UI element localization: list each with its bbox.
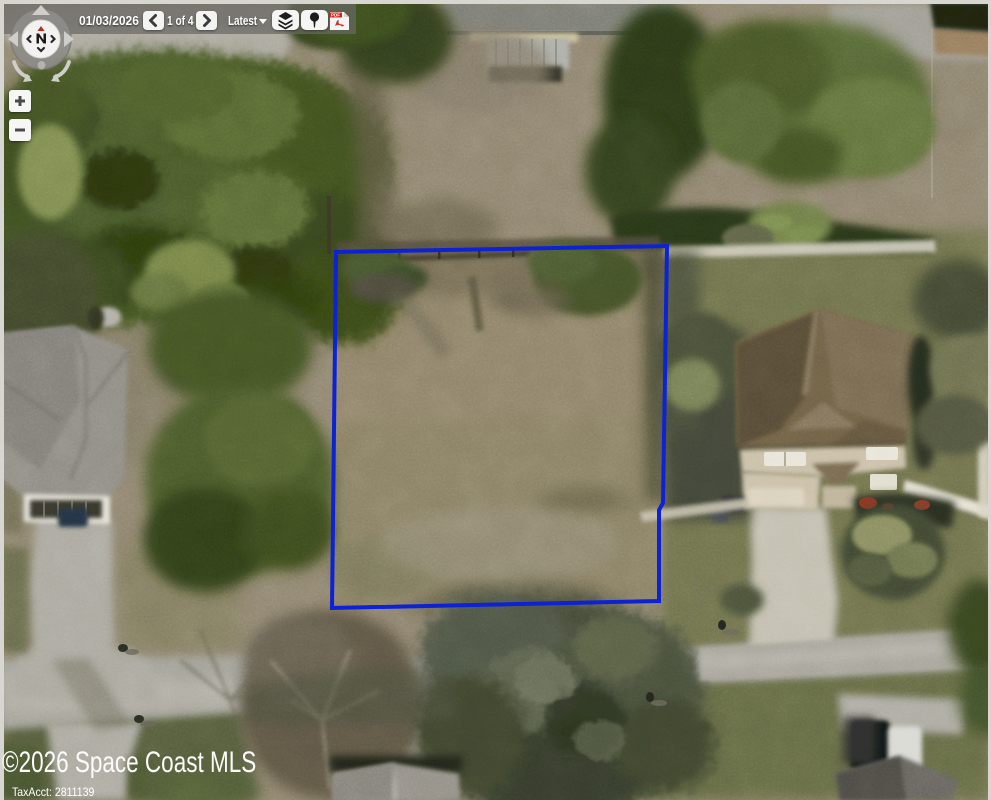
svg-text:PDF: PDF <box>331 13 340 18</box>
